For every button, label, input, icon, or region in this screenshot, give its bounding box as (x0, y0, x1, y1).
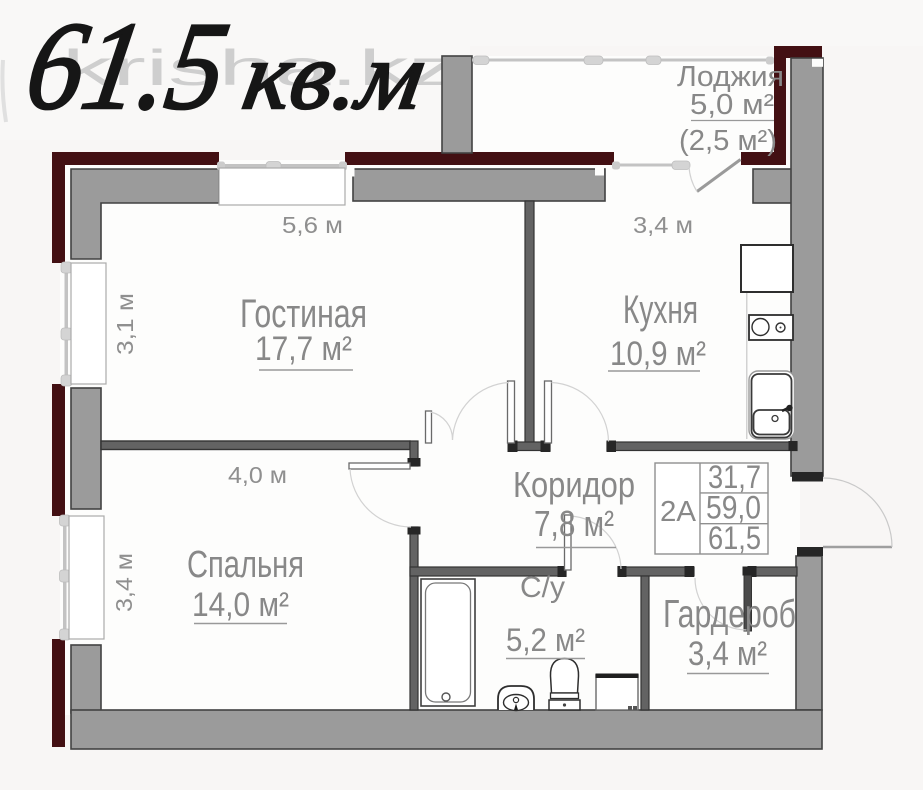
svg-text:14,0 м²: 14,0 м² (192, 586, 289, 624)
svg-text:(2,5 м²): (2,5 м²) (679, 125, 777, 157)
svg-text:3,4 м²: 3,4 м² (688, 635, 767, 673)
svg-text:3,4 м: 3,4 м (633, 212, 693, 238)
svg-text:5,2 м²: 5,2 м² (506, 622, 585, 658)
svg-text:2А: 2А (660, 496, 697, 528)
svg-text:Коридор: Коридор (513, 464, 635, 505)
svg-text:4,0 м: 4,0 м (228, 462, 287, 488)
svg-text:Гардероб: Гардероб (663, 593, 796, 636)
svg-text:7,8 м²: 7,8 м² (534, 503, 614, 544)
svg-text:С/у: С/у (520, 571, 565, 604)
svg-text:17,7 м²: 17,7 м² (255, 330, 352, 368)
svg-text:5,0 м²: 5,0 м² (690, 89, 774, 121)
svg-text:кв.м: кв.м (236, 23, 433, 129)
svg-text:61,5: 61,5 (708, 520, 761, 556)
svg-text:Спальня: Спальня (187, 544, 304, 586)
svg-text:5,6 м: 5,6 м (282, 212, 343, 238)
svg-text:61.5: 61.5 (17, 0, 237, 136)
svg-text:10,9 м²: 10,9 м² (610, 335, 706, 373)
svg-text:Кухня: Кухня (623, 288, 698, 332)
svg-text:3,4 м: 3,4 м (111, 553, 137, 612)
svg-text:3,1 м: 3,1 м (112, 293, 138, 355)
